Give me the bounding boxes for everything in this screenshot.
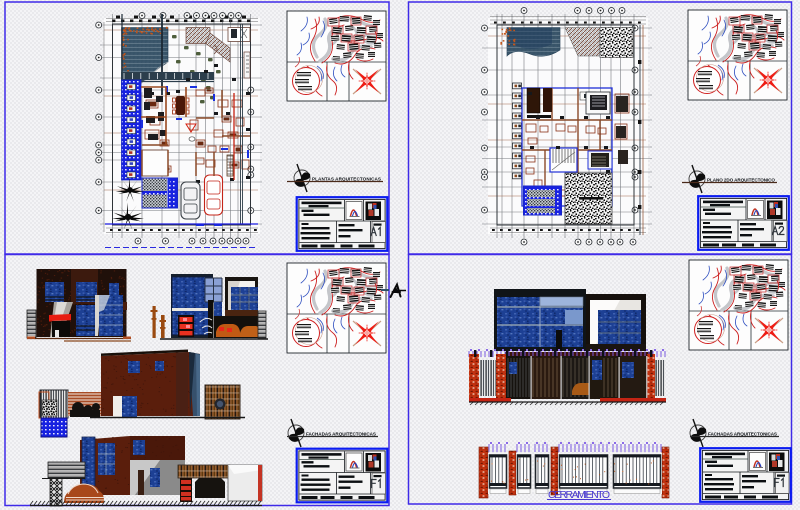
svg-text:PLANTAS ARQUITECTONICAS: PLANTAS ARQUITECTONICAS (312, 177, 381, 182)
svg-text:FACHADAS ARQUITECTONICAS: FACHADAS ARQUITECTONICAS (306, 432, 376, 437)
svg-text:FACHADAS ARQUITECTONICAS: FACHADAS ARQUITECTONICAS (708, 432, 777, 437)
svg-text:PLANO 2DO ARQUITECTONICO: PLANO 2DO ARQUITECTONICO (707, 178, 775, 183)
